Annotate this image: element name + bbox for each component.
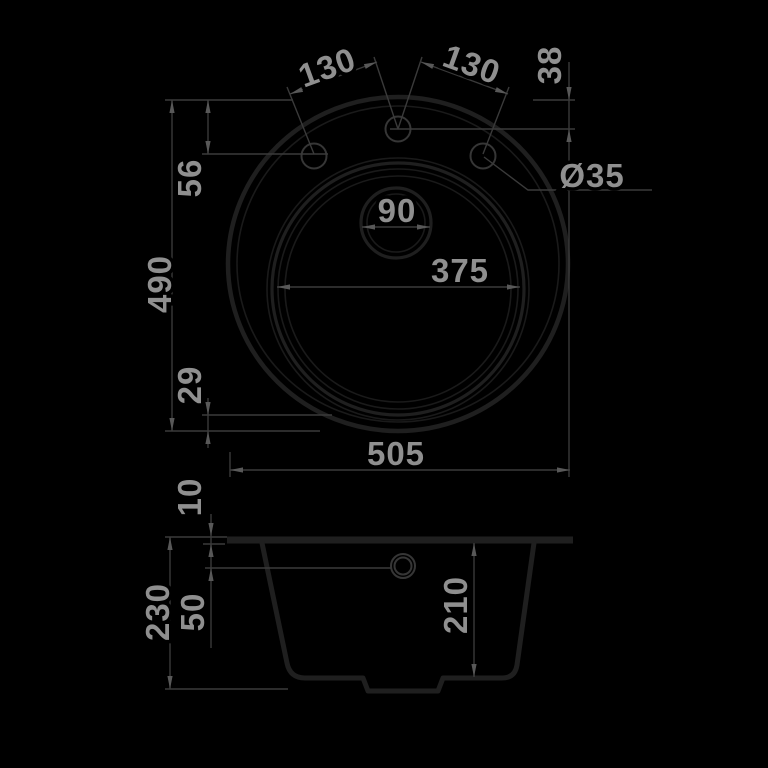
- dim-label-spacing-left: 130: [293, 40, 360, 95]
- outer-edge: [228, 97, 568, 431]
- dim-label-edge-to-center-hole: 38: [531, 46, 568, 85]
- side-view: 10 230 50 210: [139, 478, 573, 691]
- dim-label-rim-thickness: 10: [171, 478, 208, 517]
- sink-outline-top: [228, 97, 568, 431]
- dim-label-hole-diameter: Ø35: [559, 157, 624, 194]
- side-view-arrowheads: [167, 523, 476, 689]
- side-view-dimension-labels: 10 230 50 210: [139, 478, 474, 641]
- dim-label-edge-to-side-holes: 56: [171, 159, 208, 198]
- faucet-hole-left: [302, 144, 327, 169]
- dim-label-bowl-bottom-gap: 29: [171, 366, 208, 405]
- sink-technical-drawing: 130 130 38 56 490 29 90 375 Ø35 505: [0, 0, 768, 768]
- drawing-canvas: 130 130 38 56 490 29 90 375 Ø35 505: [0, 0, 768, 768]
- dim-label-drain: 90: [378, 192, 417, 229]
- drain-side-inner: [395, 558, 412, 575]
- dim-label-spacing-right: 130: [438, 37, 505, 92]
- dim-label-overall-depth: 230: [139, 583, 176, 641]
- top-view: 130 130 38 56 490 29 90 375 Ø35 505: [141, 37, 652, 477]
- dim-label-bowl-width: 375: [431, 252, 489, 289]
- dim-label-height: 490: [141, 255, 178, 313]
- dim-label-bowl-depth: 210: [437, 576, 474, 634]
- dim-label-width: 505: [367, 435, 425, 472]
- dim-label-rim-to-drain: 50: [174, 593, 211, 632]
- faucet-hole-right: [471, 144, 496, 169]
- bowl-profile: [262, 543, 534, 691]
- sink-outline-side: [227, 540, 573, 691]
